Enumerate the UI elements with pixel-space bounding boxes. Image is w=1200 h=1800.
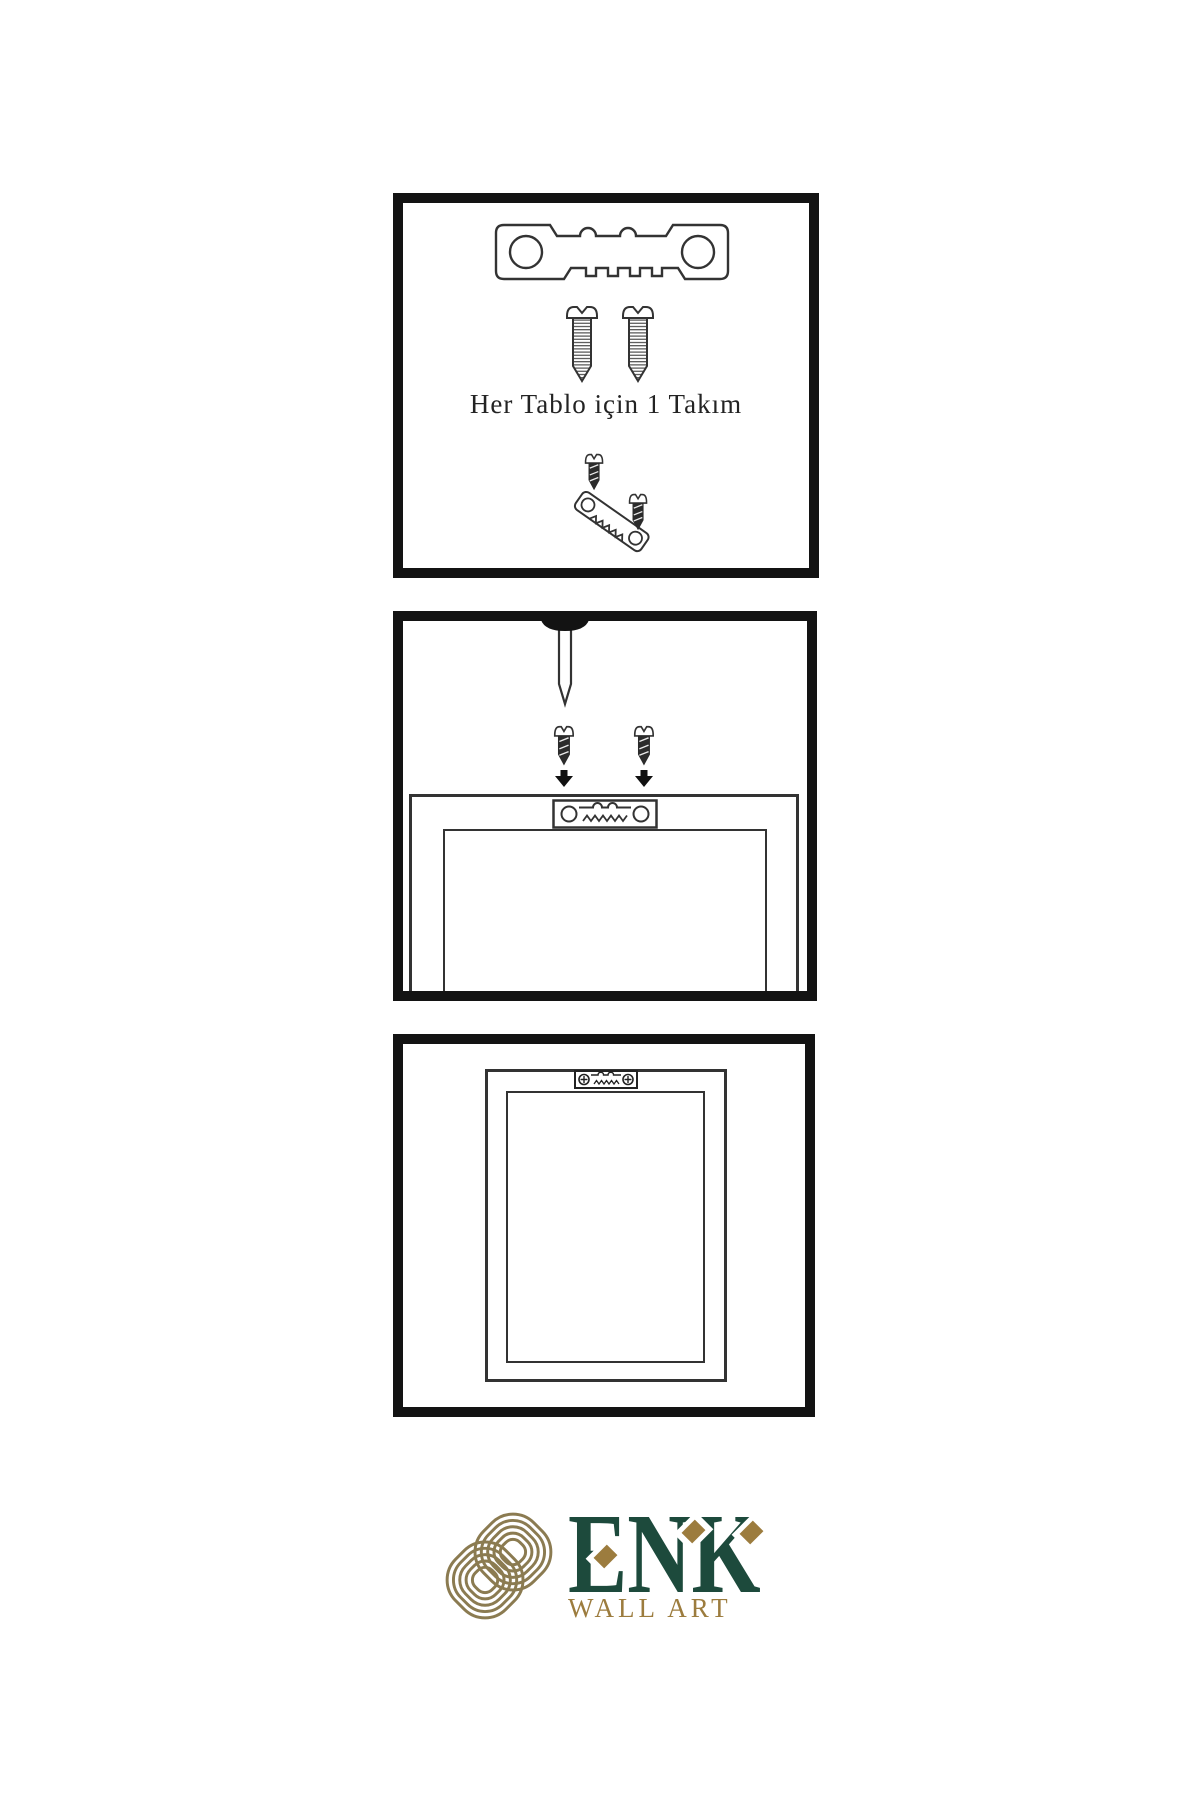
nail-icon bbox=[535, 620, 595, 716]
screw-icon bbox=[635, 727, 653, 765]
frame-back-inner bbox=[506, 1091, 705, 1363]
knot-loop-a bbox=[435, 1530, 535, 1630]
screw-icon bbox=[586, 455, 603, 490]
mounted-sawtooth-hanger-icon bbox=[574, 1070, 638, 1089]
sawtooth-hanger-icon bbox=[492, 222, 732, 282]
hanger-assembly-icon bbox=[573, 446, 665, 554]
instruction-sheet: { "page": { "background": "#ffffff" }, "… bbox=[0, 0, 1200, 1800]
knot-icon bbox=[430, 1494, 568, 1638]
knot-loop-b bbox=[463, 1502, 563, 1602]
screw-icon bbox=[623, 307, 653, 381]
screw-icon bbox=[555, 727, 573, 765]
screws-and-arrows bbox=[549, 722, 659, 790]
attach-hanger-panel bbox=[393, 611, 817, 1001]
mounted-frame-panel bbox=[393, 1034, 815, 1417]
screw-pair-icon bbox=[565, 303, 665, 387]
kit-caption: Her Tablo için 1 Takım bbox=[403, 389, 809, 420]
sawtooth-hanger-plate-icon bbox=[552, 799, 658, 829]
brand-subtitle: WALL ART bbox=[568, 1593, 732, 1624]
frame-back-inner bbox=[443, 829, 767, 991]
arrow-down-icon bbox=[555, 770, 573, 787]
hardware-kit-panel: Her Tablo için 1 Takım bbox=[393, 193, 819, 578]
screw-icon bbox=[567, 307, 597, 381]
arrow-down-icon bbox=[635, 770, 653, 787]
